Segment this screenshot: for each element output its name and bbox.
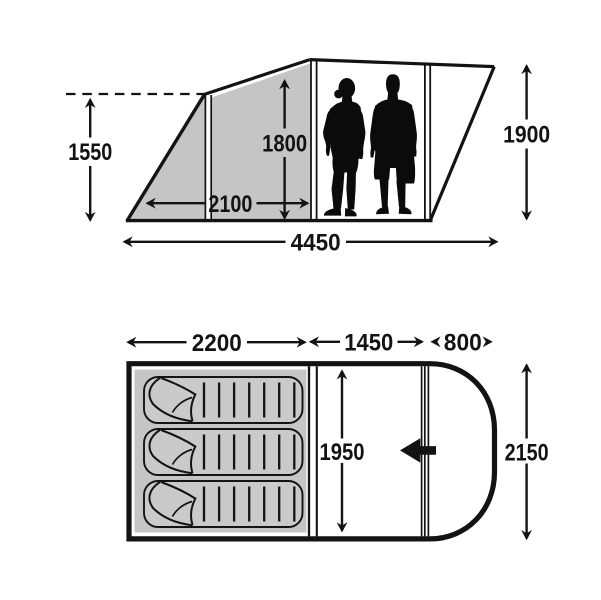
- svg-text:2150: 2150: [505, 439, 549, 466]
- svg-text:2200: 2200: [192, 330, 242, 357]
- svg-text:1950: 1950: [320, 439, 365, 466]
- svg-text:4450: 4450: [291, 229, 341, 256]
- svg-text:1450: 1450: [344, 329, 393, 356]
- svg-text:800: 800: [444, 329, 482, 356]
- svg-text:1900: 1900: [503, 122, 550, 149]
- svg-text:1800: 1800: [262, 130, 307, 157]
- svg-text:2100: 2100: [208, 191, 252, 218]
- svg-text:1550: 1550: [68, 139, 112, 166]
